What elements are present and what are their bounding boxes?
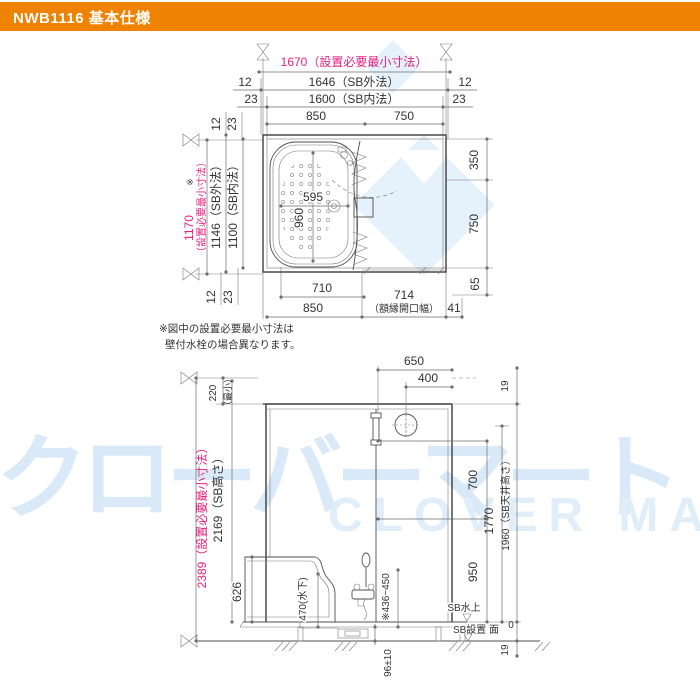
plan-dim-gap-left-outer: 12 xyxy=(238,75,252,89)
elevation-slide-bar xyxy=(371,413,381,445)
header-bar: NWB1116 基本仕様 xyxy=(0,2,700,31)
elev-dim-base: 19 xyxy=(500,644,511,656)
footnote: ※図中の設置必要最小寸法は 壁付水栓の場合異なります。 xyxy=(159,321,300,354)
plan-dim-outer-depth: 1146（SB外法） xyxy=(209,159,223,249)
elev-label-surface: SB設置 面 xyxy=(453,623,499,636)
elevation-faucet xyxy=(352,553,374,620)
elev-dim-drain-height: 470(水下) xyxy=(297,577,309,620)
page-title: NWB1116 基本仕様 xyxy=(0,2,700,28)
plan-dim-tub-length: 710 xyxy=(312,281,332,295)
elev-dim-leg-height: 96±10 xyxy=(383,649,394,677)
elev-dim-zero: 0 xyxy=(508,620,514,631)
elev-dim-right-upper: 700 xyxy=(466,470,480,490)
plan-dim-required-depth-mark: ※ xyxy=(185,178,195,186)
plan-dim-gap-left-inner: 23 xyxy=(244,92,258,106)
elevation-view: 650 400 19 220 （最小） 2389（設置必要最小寸法） 2169（… xyxy=(181,354,550,677)
plan-dim-gap-top-outer: 12 xyxy=(209,117,223,131)
plan-dim-tub-inner-width: 595 xyxy=(303,190,323,204)
plan-dim-bath-zone-bottom: 850 xyxy=(303,301,323,315)
plan-dim-gap-bottom-inner: 23 xyxy=(221,290,235,304)
elev-dim-fan-offset: 400 xyxy=(418,371,438,385)
plan-view: 1670（設置必要最小寸法） 12 1646（SB外法） 12 23 1600（… xyxy=(182,44,493,319)
elev-dim-tub-height: 626 xyxy=(230,582,244,602)
elev-dim-bar-offset: 650 xyxy=(404,354,424,368)
footnote-line1: ※図中の設置必要最小寸法は xyxy=(159,321,300,337)
plan-dim-frame-opening: 714 xyxy=(394,288,414,302)
plan-dim-outer-width: 1646（SB外法） xyxy=(309,75,400,89)
elev-dim-required-height: 2389（設置必要最小寸法） xyxy=(194,442,209,589)
plan-dim-tub-inner-length: 960 xyxy=(292,208,306,228)
plan-dim-required-depth: 1170 xyxy=(182,215,196,241)
plan-dim-wash-zone: 750 xyxy=(394,109,414,123)
plan-dim-inner-depth: 1100（SB内法） xyxy=(226,159,240,249)
plan-dim-gap-right-inner: 23 xyxy=(452,92,466,106)
plan-dim-required-depth-label: （設置必要最小寸法） xyxy=(195,157,208,257)
elev-dim-sb-height: 2169（SB高さ） xyxy=(210,452,225,543)
plan-dim-frame-opening-label: （額縁開口幅） xyxy=(369,302,439,315)
plan-dim-frame-offset: 41 xyxy=(447,301,461,315)
plan-dim-right-below: 65 xyxy=(468,277,482,291)
plan-dimension-lines xyxy=(207,72,487,317)
plan-dim-gap-right-outer: 12 xyxy=(458,75,472,89)
technical-drawing: 1670（設置必要最小寸法） 12 1646（SB外法） 12 23 1600（… xyxy=(0,0,700,700)
plan-dim-required-width: 1670（設置必要最小寸法） xyxy=(281,54,428,69)
spec-sheet: クローバーマート CLOVER MART xyxy=(0,0,700,700)
elev-dim-right-lower: 950 xyxy=(466,562,480,582)
plan-dim-gap-bottom-outer: 12 xyxy=(204,290,218,304)
elev-dim-top-edge: 19 xyxy=(500,380,511,392)
elev-dim-right-mid: 1770 xyxy=(482,507,496,534)
plan-bathtub xyxy=(270,142,357,267)
elev-label-pan-top: SB水上 xyxy=(447,602,480,614)
elev-dim-min-clearance-label: （最小） xyxy=(223,374,233,410)
plan-dim-right-lower: 750 xyxy=(467,214,481,234)
plan-dim-right-upper: 350 xyxy=(467,150,481,170)
elevation-bathtub xyxy=(245,557,335,622)
elevation-drain xyxy=(300,622,368,638)
plan-dim-bath-zone: 850 xyxy=(306,109,326,123)
plan-dim-gap-top-inner: 23 xyxy=(225,117,239,131)
plan-dim-inner-width: 1600（SB内法） xyxy=(309,92,400,106)
elev-dim-ceiling-height: 1960（SB天井高さ） xyxy=(499,455,512,551)
footnote-line2: 壁付水栓の場合異なります。 xyxy=(159,337,300,353)
elev-dim-min-clearance: 220 xyxy=(208,384,219,401)
elev-dim-faucet-range: ※436~450 xyxy=(381,573,392,621)
